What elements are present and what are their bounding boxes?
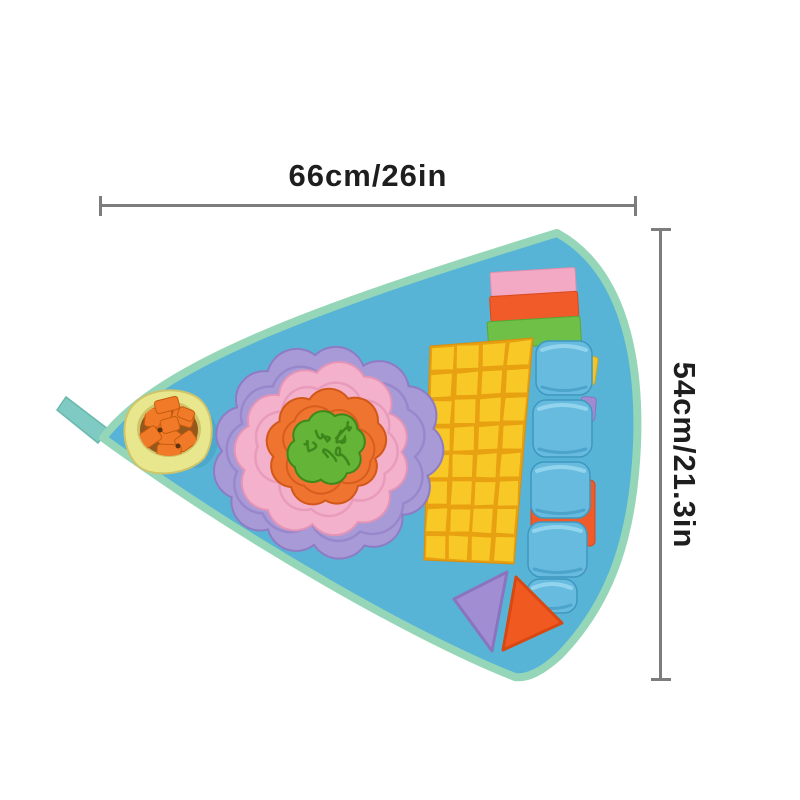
height-dimension-line [659,229,662,681]
width-tick-left [99,196,102,216]
height-dimension-label: 54cm/21.3in [666,362,702,549]
treat-bowl [124,390,218,473]
fabric-loop [528,522,587,577]
fabric-loop [536,341,592,395]
fabric-loop [531,462,590,518]
width-dimension-label: 66cm/26in [188,158,548,194]
fabric-loop [533,400,592,457]
height-tick-top [651,228,671,231]
fabric-strips [484,267,581,349]
height-tick-bottom [651,678,671,681]
width-dimension-line [100,204,636,207]
width-tick-right [634,196,637,216]
product-dimension-image: 66cm/26in 54cm/21.3in [0,0,800,800]
